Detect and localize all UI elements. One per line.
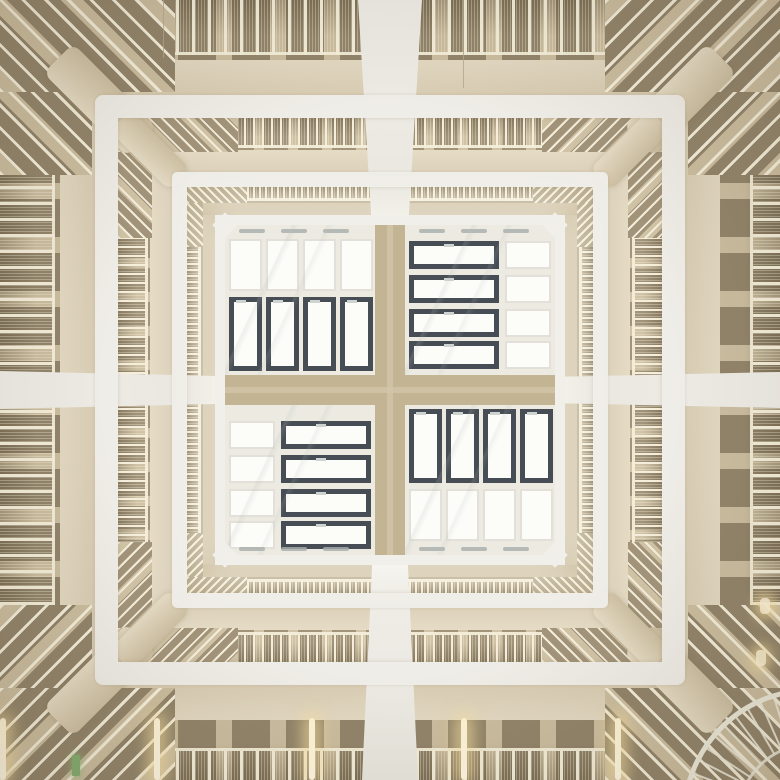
vent-window-dark-frame bbox=[409, 341, 499, 369]
vent-actuator bbox=[416, 412, 426, 415]
vent-window-dark-frame bbox=[229, 297, 262, 371]
vent-hardware bbox=[281, 229, 307, 233]
glass-pane bbox=[229, 521, 275, 549]
vent-window-dark-frame bbox=[281, 521, 371, 549]
glass-pane bbox=[229, 421, 275, 449]
pendant-tube-light bbox=[0, 718, 6, 780]
spiral-staircase bbox=[612, 612, 780, 780]
glass-pane bbox=[340, 239, 373, 291]
vent-actuator bbox=[444, 244, 454, 247]
vent-actuator bbox=[444, 278, 454, 281]
vent-window-dark-frame bbox=[281, 489, 371, 517]
skylight-interior bbox=[225, 225, 555, 555]
glass-pane bbox=[266, 239, 299, 291]
vent-window-dark-frame bbox=[483, 409, 516, 483]
vent-hardware bbox=[461, 547, 487, 551]
vent-hardware bbox=[419, 547, 445, 551]
skylight-quadrant-top-right bbox=[405, 225, 555, 375]
vent-actuator bbox=[527, 412, 537, 415]
vent-hardware bbox=[461, 229, 487, 233]
vent-actuator bbox=[316, 492, 326, 495]
stair-baluster bbox=[736, 717, 767, 759]
glass-pane bbox=[505, 275, 551, 303]
vent-actuator bbox=[453, 412, 463, 415]
vent-actuator bbox=[316, 524, 326, 527]
skylight-quadrant-bottom-left bbox=[225, 405, 375, 555]
vent-actuator bbox=[273, 300, 283, 303]
vent-actuator bbox=[444, 312, 454, 315]
vent-window-dark-frame bbox=[281, 421, 371, 449]
vent-window-dark-frame bbox=[520, 409, 553, 483]
vent-actuator bbox=[490, 412, 500, 415]
skylight-quadrant-bottom-right bbox=[405, 405, 555, 555]
glass-pane bbox=[505, 341, 551, 369]
glass-pane bbox=[505, 309, 551, 337]
vent-actuator bbox=[310, 300, 320, 303]
pendant-cable bbox=[163, 0, 164, 58]
vent-hardware bbox=[503, 229, 529, 233]
vent-hardware bbox=[239, 229, 265, 233]
vent-window-dark-frame bbox=[409, 241, 499, 269]
glass-pane bbox=[505, 241, 551, 269]
vent-hardware bbox=[323, 547, 349, 551]
glass-pane bbox=[483, 489, 516, 541]
vent-hardware bbox=[503, 547, 529, 551]
glass-pane bbox=[229, 239, 262, 291]
vent-window-dark-frame bbox=[409, 309, 499, 337]
exit-sign bbox=[72, 755, 80, 776]
stair-baluster bbox=[707, 748, 750, 777]
vent-hardware bbox=[323, 229, 349, 233]
vent-window-dark-frame bbox=[303, 297, 336, 371]
glass-pane bbox=[303, 239, 336, 291]
glass-pane bbox=[520, 489, 553, 541]
vent-window-dark-frame bbox=[281, 455, 371, 483]
atrium-photo bbox=[0, 0, 780, 780]
glass-pane bbox=[229, 489, 275, 517]
vent-actuator bbox=[347, 300, 357, 303]
vent-window-dark-frame bbox=[409, 409, 442, 483]
vent-window-dark-frame bbox=[340, 297, 373, 371]
pendant-tube-light bbox=[154, 718, 160, 780]
skylight bbox=[215, 215, 565, 565]
pendant-cable bbox=[463, 0, 464, 88]
stair-baluster bbox=[748, 709, 774, 754]
vent-hardware bbox=[281, 547, 307, 551]
vent-actuator bbox=[316, 458, 326, 461]
vent-actuator bbox=[236, 300, 246, 303]
vent-window-dark-frame bbox=[446, 409, 479, 483]
skylight-quadrant-top-left bbox=[225, 225, 375, 375]
vent-actuator bbox=[444, 344, 454, 347]
vent-window-dark-frame bbox=[409, 275, 499, 303]
glass-pane bbox=[229, 455, 275, 483]
vent-hardware bbox=[239, 547, 265, 551]
vent-actuator bbox=[316, 424, 326, 427]
stair-baluster bbox=[725, 727, 761, 765]
cross-beam-highlight-h bbox=[225, 387, 555, 393]
pendant-tube-light bbox=[309, 718, 315, 780]
stair-baluster bbox=[715, 737, 755, 770]
vent-hardware bbox=[419, 229, 445, 233]
glass-pane bbox=[409, 489, 442, 541]
glass-pane bbox=[446, 489, 479, 541]
pendant-tube-light bbox=[461, 718, 467, 780]
vent-window-dark-frame bbox=[266, 297, 299, 371]
